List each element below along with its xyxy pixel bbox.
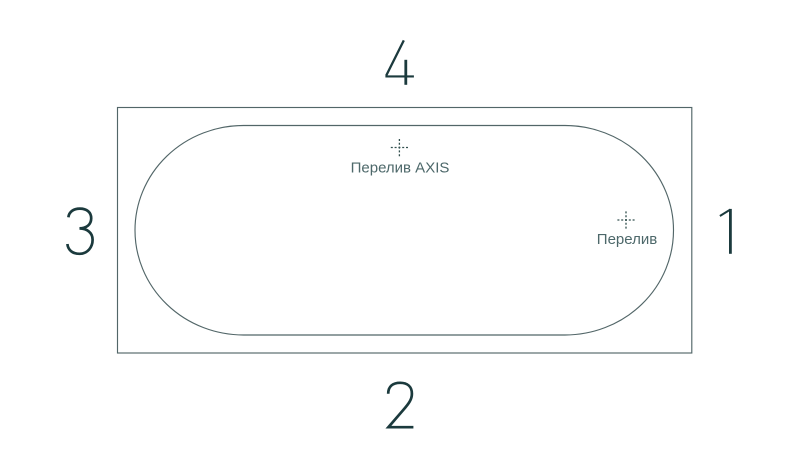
svg-text:Перелив AXIS: Перелив AXIS [351,159,450,176]
svg-text:Перелив: Перелив [597,231,657,248]
